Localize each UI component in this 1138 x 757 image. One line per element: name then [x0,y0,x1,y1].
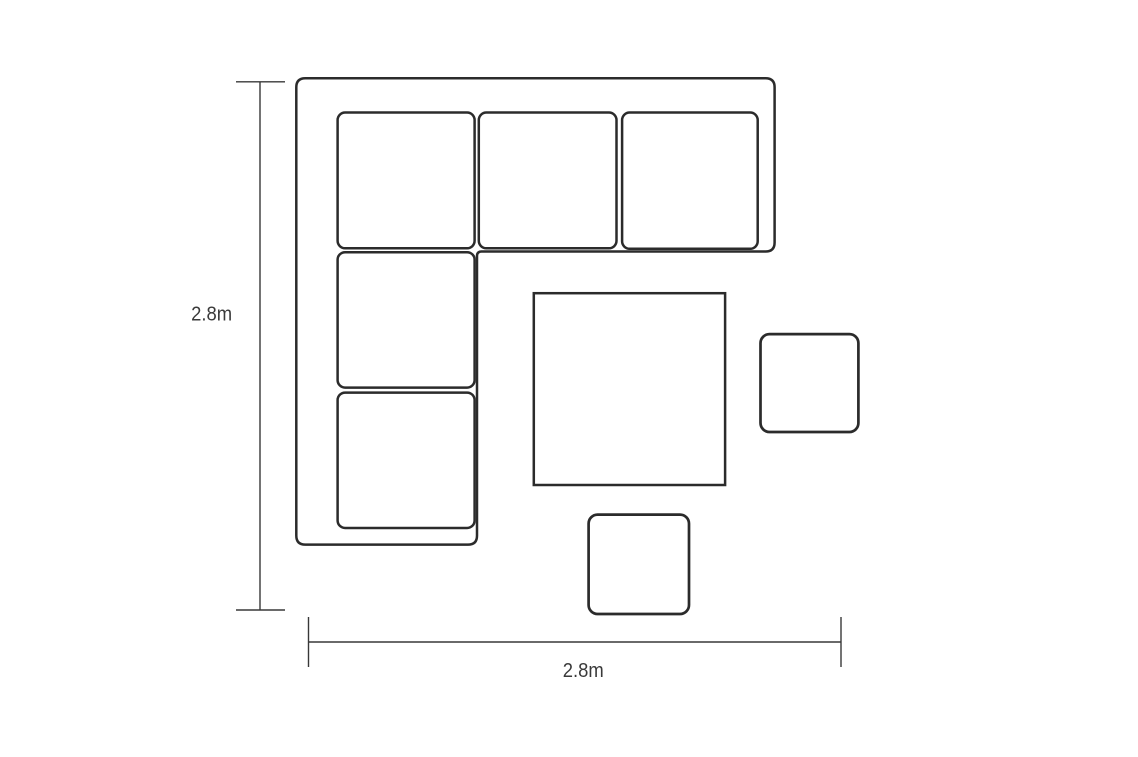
svg-text:2.8m: 2.8m [563,659,604,682]
svg-text:2.8m: 2.8m [191,303,232,326]
